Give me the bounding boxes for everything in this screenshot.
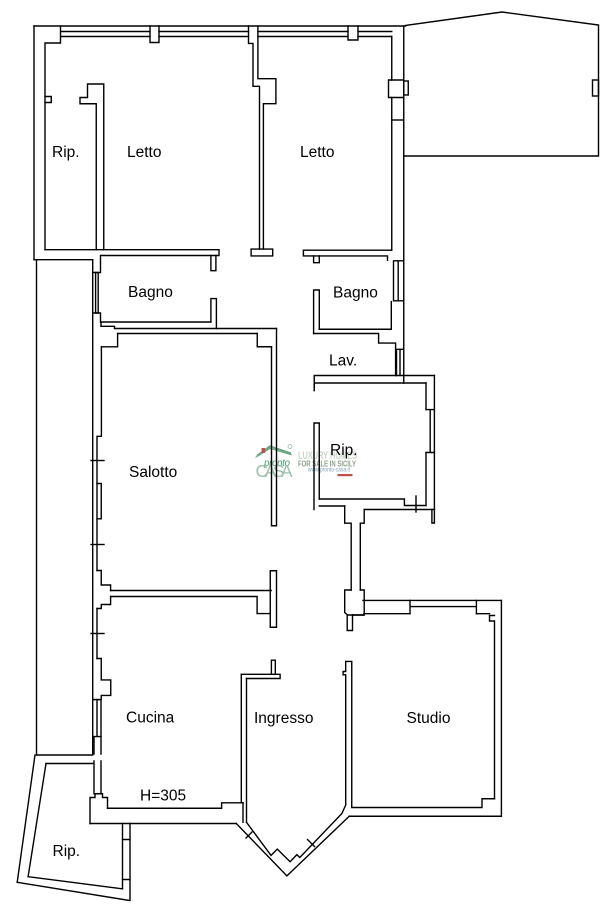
svg-text:Cucina: Cucina bbox=[126, 710, 175, 727]
svg-text:H=305: H=305 bbox=[140, 788, 186, 805]
svg-text:Salotto: Salotto bbox=[129, 464, 177, 481]
svg-text:Letto: Letto bbox=[300, 144, 334, 161]
svg-text:Letto: Letto bbox=[127, 144, 161, 161]
svg-text:Rip.: Rip. bbox=[52, 144, 80, 161]
svg-text:Lav.: Lav. bbox=[329, 353, 357, 370]
svg-text:Rip.: Rip. bbox=[330, 442, 358, 459]
svg-text:CASA: CASA bbox=[256, 461, 293, 481]
svg-text:Rip.: Rip. bbox=[53, 843, 81, 860]
svg-text:Ingresso: Ingresso bbox=[254, 710, 313, 727]
svg-text:Bagno: Bagno bbox=[128, 284, 173, 301]
svg-text:Studio: Studio bbox=[407, 710, 451, 727]
svg-text:Bagno: Bagno bbox=[333, 285, 378, 302]
